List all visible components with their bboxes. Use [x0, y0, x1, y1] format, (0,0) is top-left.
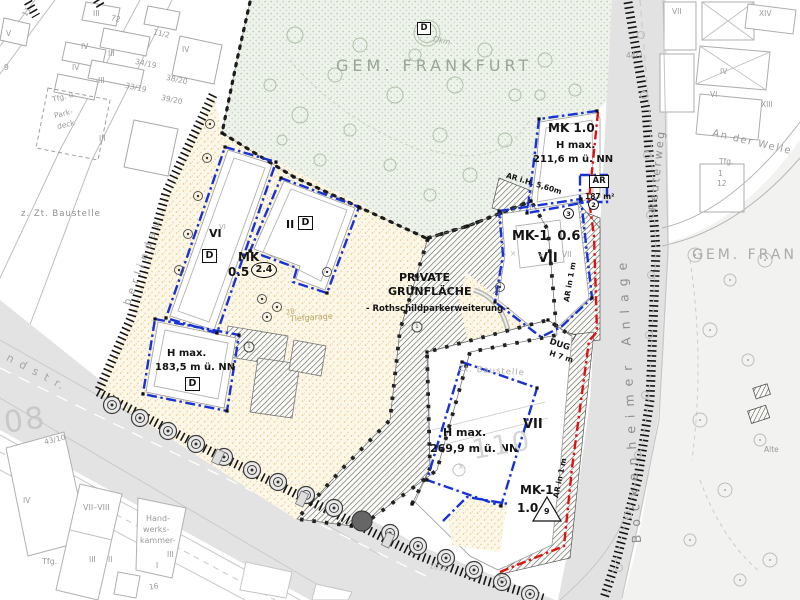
cadastral-label: ×	[458, 463, 464, 471]
mk10-hmax-value: 211,6 m ü. NN	[533, 155, 613, 165]
cadastral-label: 16	[148, 582, 159, 591]
cadastral-label: V	[6, 30, 11, 38]
zoning-plan-map[interactable]: GEM. FRANKFURT GEM. FRAN PRIVATE GRÜNFLÄ…	[0, 0, 800, 600]
cadastral-label: kammer-	[140, 537, 176, 545]
mk05-d-box-b: D	[298, 216, 313, 230]
cadastral-label: Hand-	[146, 515, 170, 523]
gem-frankfurt-label: GEM. FRANKFURT	[336, 58, 532, 74]
cadastral-label: VII–VIII	[83, 504, 110, 512]
cadastral-label: 9	[4, 64, 9, 72]
cadastral-label: III	[108, 50, 115, 58]
private-green-line2: GRÜNFLÄCHE	[388, 286, 471, 297]
cadastral-label: 12	[717, 180, 727, 188]
cadastral-label: IV	[23, 497, 30, 505]
cadastral-label: ×	[510, 250, 516, 258]
cadastral-label: werks-	[143, 526, 169, 534]
mk05-storeys-ii: II	[286, 219, 294, 230]
cadastral-label: IV	[81, 43, 88, 51]
cadastral-label: ×	[538, 252, 544, 260]
mk10-name: MK 1.0	[548, 122, 595, 134]
cadastral-label: 1	[415, 324, 419, 330]
gem-frankfurt-right-label: GEM. FRAN	[692, 248, 797, 262]
private-green-line1: PRIVATE	[399, 272, 450, 283]
cadastral-label: XIV	[759, 10, 771, 18]
plan-canvas	[0, 0, 800, 600]
parcel-number-08: 08	[2, 403, 48, 439]
cadastral-label: III	[167, 551, 174, 559]
mk05-gfz-circle: 2.4	[251, 262, 277, 278]
cadastral-label: IV	[720, 68, 727, 76]
cadastral-label: 15	[496, 574, 507, 583]
mk05-name: MK	[238, 251, 259, 263]
triangle-9-label: 9	[544, 508, 550, 516]
cadastral-label: III	[93, 10, 100, 18]
hmax-183-label: H max.	[167, 349, 206, 359]
cadastral-label: XIII	[761, 101, 773, 109]
cadastral-label: VI	[710, 91, 717, 99]
mk05-value: 0.5	[228, 266, 249, 278]
private-green-line3: - Rothschildparkerweiterung -	[366, 305, 510, 314]
cadastral-label: VII	[562, 251, 572, 259]
cadastral-label: Alte	[764, 446, 779, 454]
cadastral-label: VII	[672, 8, 682, 16]
hmax-183-value: 183,5 m ü. NN	[155, 363, 235, 373]
circle-2-marker: 2	[588, 199, 599, 210]
circle-3-marker: 3	[563, 208, 574, 219]
monument-d-box: D	[417, 22, 431, 35]
cadastral-label: VI	[219, 224, 226, 231]
cadastral-label: Tfg.	[719, 158, 733, 166]
cadastral-label: 1	[718, 170, 723, 178]
mk1-10-name: MK-1	[520, 484, 554, 496]
cadastral-label: I	[156, 562, 158, 570]
mk1-10-value: 1.0	[517, 502, 538, 514]
cadastral-label: Tfg.	[42, 558, 57, 566]
cadastral-label: III	[89, 556, 96, 564]
mk10-hmax-label: H max.	[556, 141, 595, 151]
cadastral-label: III	[99, 135, 106, 143]
cadastral-label: II	[108, 556, 112, 564]
cadastral-label: III	[98, 77, 105, 85]
mk05-d-box-a: D	[202, 249, 217, 263]
mk10-ar-box: AR	[589, 175, 609, 188]
cadastral-label: IV	[182, 46, 189, 54]
mk1-06-name: MK-1 0.6	[512, 230, 580, 243]
hmax-183-d-box: D	[185, 377, 200, 391]
cadastral-label: 44/2	[626, 52, 643, 60]
cadastral-label: 1	[247, 344, 251, 350]
cadastral-label: IV	[72, 64, 79, 72]
cadastral-label: 72	[110, 14, 121, 23]
construction-site-left: z. Zt. Baustelle	[21, 210, 101, 219]
